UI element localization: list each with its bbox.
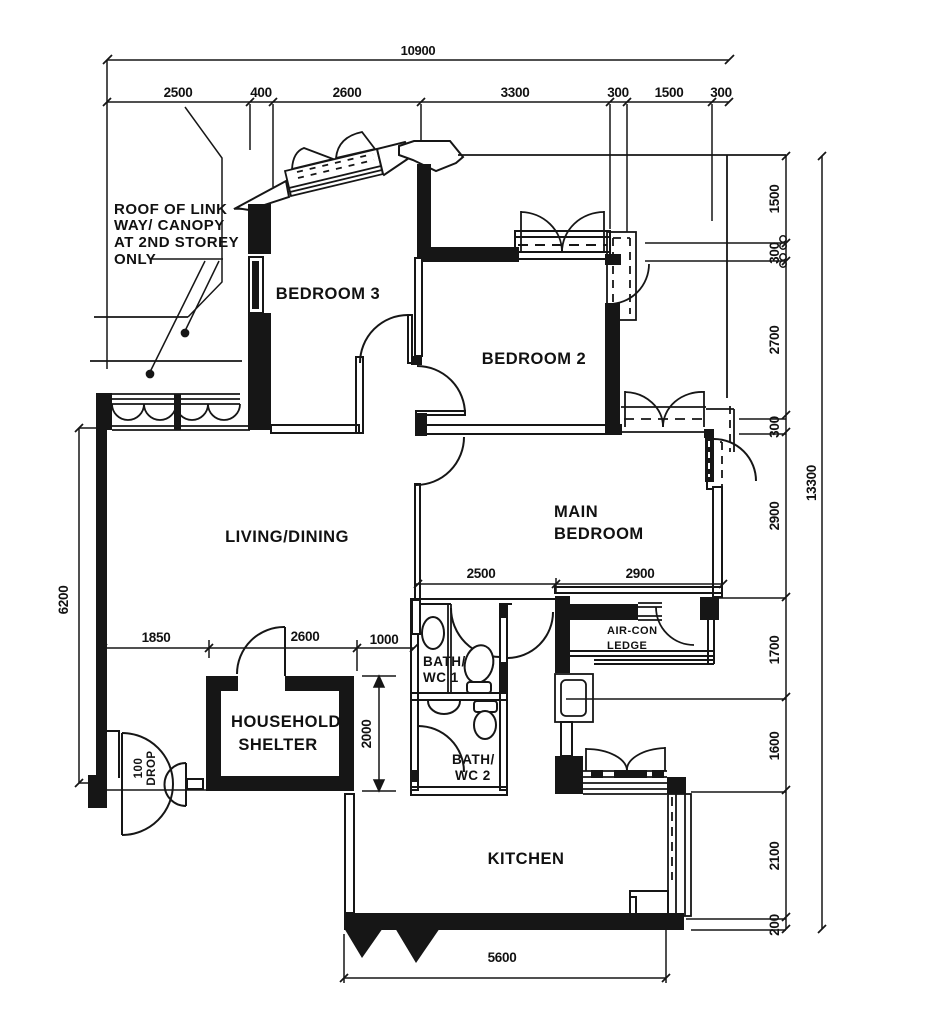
- svg-text:BEDROOM 2: BEDROOM 2: [482, 350, 586, 368]
- svg-text:2700: 2700: [767, 326, 782, 355]
- svg-text:WC 1: WC 1: [423, 670, 459, 685]
- svg-text:1850: 1850: [142, 630, 171, 645]
- svg-text:AIR-CON: AIR-CON: [607, 625, 658, 637]
- svg-text:BEDROOM 3: BEDROOM 3: [276, 285, 380, 303]
- svg-text:2900: 2900: [767, 502, 782, 531]
- svg-text:1500: 1500: [767, 185, 782, 214]
- svg-text:BEDROOM: BEDROOM: [554, 525, 644, 543]
- svg-text:300: 300: [710, 85, 732, 100]
- svg-text:2500: 2500: [467, 566, 496, 581]
- svg-text:2500: 2500: [164, 85, 193, 100]
- svg-text:2600: 2600: [333, 85, 362, 100]
- svg-text:3300: 3300: [501, 85, 530, 100]
- svg-text:SHELTER: SHELTER: [238, 736, 317, 754]
- svg-text:1700: 1700: [767, 636, 782, 665]
- svg-text:DROP: DROP: [146, 750, 158, 785]
- svg-text:1000: 1000: [370, 632, 399, 647]
- svg-text:LIVING/DINING: LIVING/DINING: [225, 528, 349, 546]
- svg-text:300: 300: [607, 85, 629, 100]
- svg-text:WAY/ CANOPY: WAY/ CANOPY: [114, 217, 225, 234]
- svg-text:1500: 1500: [655, 85, 684, 100]
- svg-text:13300: 13300: [804, 465, 819, 501]
- svg-text:100: 100: [133, 758, 145, 779]
- svg-text:BATH/: BATH/: [452, 752, 495, 767]
- svg-text:MAIN: MAIN: [554, 503, 598, 521]
- svg-text:BATH/: BATH/: [423, 654, 466, 669]
- svg-text:ROOF OF LINK: ROOF OF LINK: [114, 201, 228, 218]
- svg-text:WC 2: WC 2: [455, 768, 491, 783]
- svg-text:2900: 2900: [626, 566, 655, 581]
- svg-text:10900: 10900: [401, 43, 436, 58]
- svg-text:1600: 1600: [767, 732, 782, 761]
- svg-text:2100: 2100: [767, 842, 782, 871]
- svg-text:2600: 2600: [291, 629, 320, 644]
- svg-text:6200: 6200: [56, 586, 71, 615]
- svg-text:400: 400: [250, 85, 272, 100]
- svg-text:5600: 5600: [488, 950, 517, 965]
- svg-text:200: 200: [767, 914, 782, 936]
- svg-text:ONLY: ONLY: [114, 251, 156, 268]
- svg-text:HOUSEHOLD: HOUSEHOLD: [231, 713, 341, 731]
- svg-text:KITCHEN: KITCHEN: [488, 850, 565, 868]
- svg-text:2000: 2000: [359, 720, 374, 749]
- svg-text:AT 2ND STOREY: AT 2ND STOREY: [114, 234, 239, 251]
